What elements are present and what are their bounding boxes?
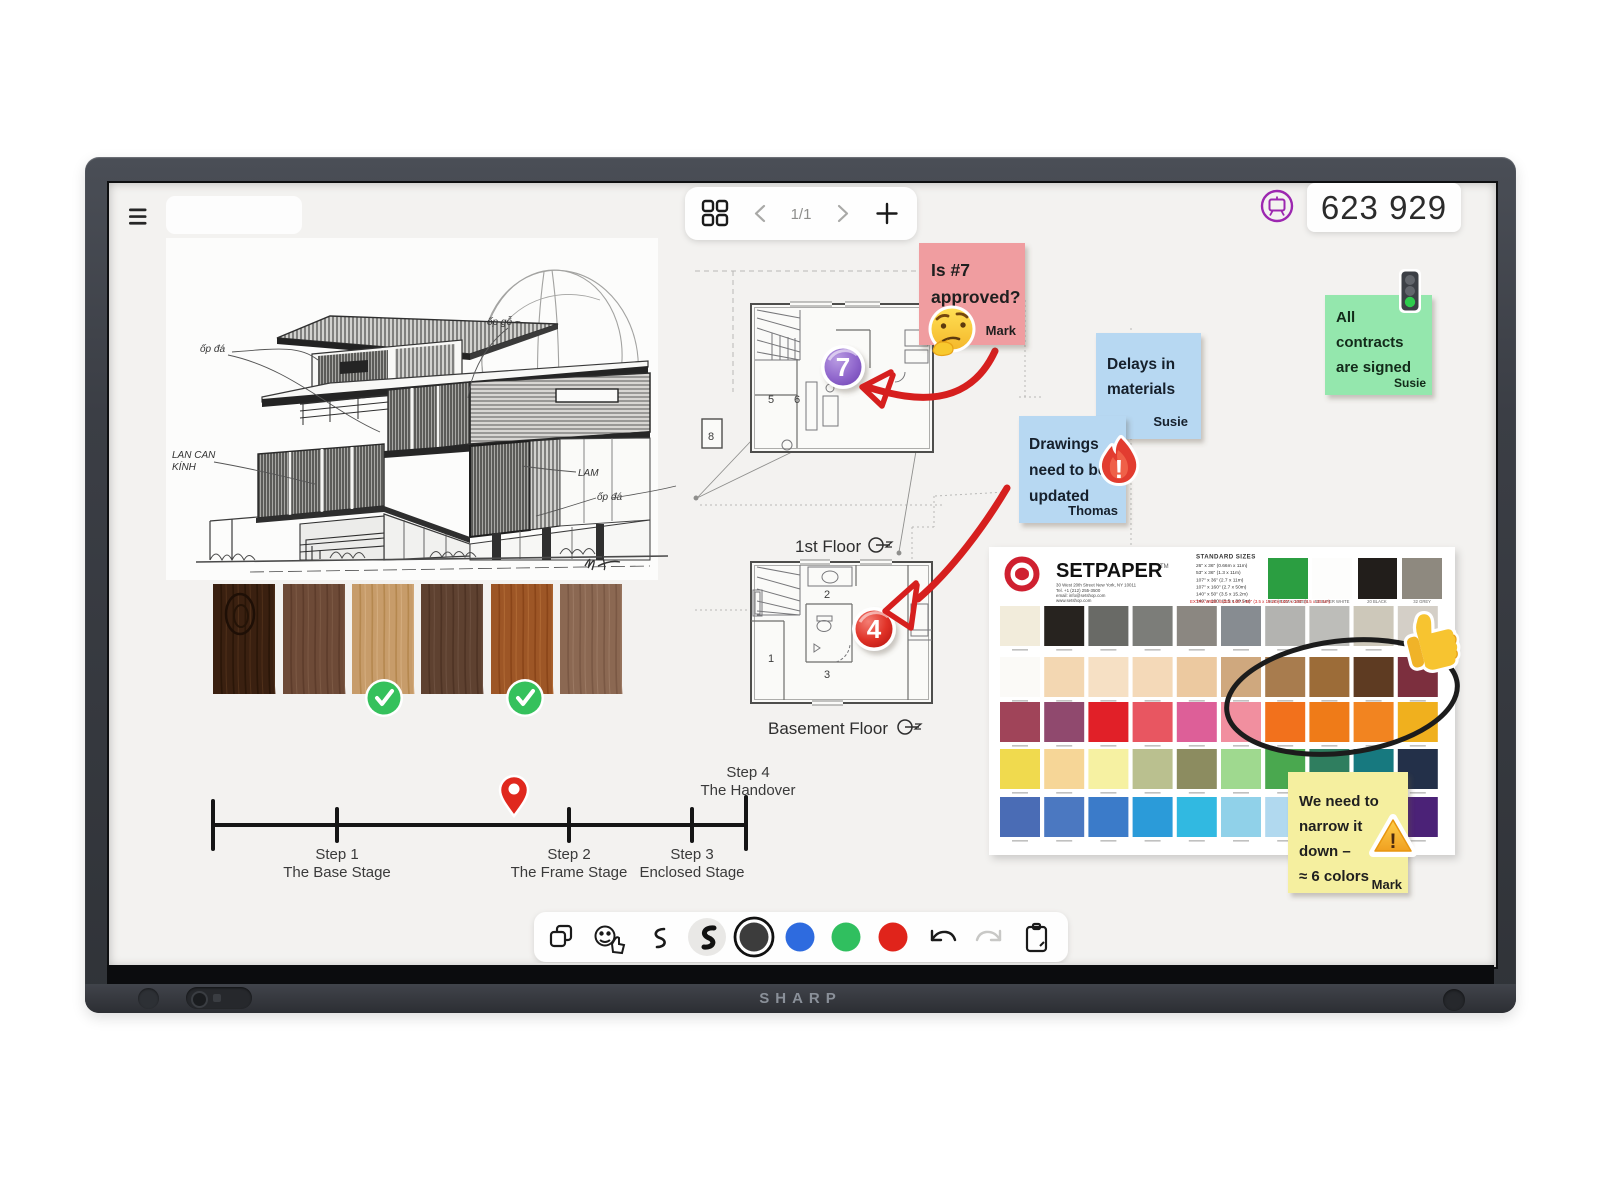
- svg-text:The Handover: The Handover: [700, 782, 795, 799]
- svg-text:26" x 36" (0.66m x 11m): 26" x 36" (0.66m x 11m): [1196, 563, 1248, 569]
- svg-text:5: 5: [768, 394, 774, 406]
- svg-text:Thomas: Thomas: [1068, 503, 1118, 518]
- svg-text:ốp gỗ ~: ốp gỗ ~: [487, 315, 521, 328]
- svg-text:Mark: Mark: [1372, 877, 1403, 892]
- svg-text:narrow it: narrow it: [1299, 818, 1362, 835]
- svg-text:2: 2: [824, 589, 830, 601]
- svg-text:Susie: Susie: [1153, 414, 1188, 429]
- svg-text:4: 4: [867, 614, 882, 644]
- svg-text:www.setshop.com: www.setshop.com: [1056, 598, 1092, 603]
- svg-text:107" x 160" (2.7 x 50m): 107" x 160" (2.7 x 50m): [1196, 584, 1247, 590]
- svg-text:Step 2: Step 2: [547, 846, 590, 863]
- svg-text:The Frame Stage: The Frame Stage: [511, 864, 628, 881]
- svg-text:ốp đá: ốp đá: [200, 343, 225, 355]
- svg-text:Step 4: Step 4: [726, 764, 769, 781]
- svg-text:down –: down –: [1299, 843, 1351, 860]
- svg-text:8: 8: [708, 431, 714, 443]
- svg-text:LAM: LAM: [578, 468, 599, 479]
- svg-text:Step 1: Step 1: [315, 846, 358, 863]
- svg-text:contracts: contracts: [1336, 334, 1404, 351]
- svg-text:1st Floor: 1st Floor: [795, 537, 861, 556]
- svg-text:53" x 36" (1.3 x 11m): 53" x 36" (1.3 x 11m): [1196, 570, 1241, 576]
- svg-text:Mark: Mark: [986, 323, 1017, 338]
- svg-text:107" x 36" (2.7 x 11m): 107" x 36" (2.7 x 11m): [1196, 577, 1244, 583]
- svg-text:We need to: We need to: [1299, 793, 1379, 810]
- svg-text:!: !: [1115, 454, 1124, 484]
- svg-text:STANDARD SIZES: STANDARD SIZES: [1196, 553, 1256, 560]
- svg-text:6: 6: [794, 394, 800, 406]
- svg-text:Step 3: Step 3: [670, 846, 713, 863]
- svg-text:Is #7: Is #7: [931, 260, 970, 280]
- svg-text:20 BLACK: 20 BLACK: [1367, 599, 1387, 604]
- svg-text:Drawings: Drawings: [1029, 436, 1099, 453]
- svg-text:are signed: are signed: [1336, 359, 1411, 376]
- svg-text:140" x 50" (3.5 x 15.2m): 140" x 50" (3.5 x 15.2m): [1196, 591, 1248, 597]
- svg-text:1/1: 1/1: [791, 206, 812, 223]
- svg-text:approved?: approved?: [931, 287, 1020, 307]
- svg-text:Delays in: Delays in: [1107, 356, 1175, 373]
- svg-text:623 929: 623 929: [1321, 189, 1447, 226]
- svg-text:Susie: Susie: [1394, 376, 1426, 390]
- svg-text:need to be: need to be: [1029, 462, 1107, 479]
- svg-text:TM: TM: [1160, 564, 1169, 570]
- svg-text:EXTRA WIDE SIZES 140" x 50": EXTRA WIDE SIZES 140" x 50" (3.5 x 15.2m…: [1190, 599, 1330, 604]
- svg-text:Enclosed Stage: Enclosed Stage: [639, 864, 744, 881]
- svg-text:!: !: [1390, 830, 1397, 853]
- svg-text:7: 7: [836, 352, 850, 382]
- svg-text:email: info@setshop.com: email: info@setshop.com: [1056, 593, 1106, 598]
- svg-text:1: 1: [768, 653, 774, 665]
- svg-text:materials: materials: [1107, 381, 1175, 398]
- svg-text:3: 3: [824, 669, 830, 681]
- svg-text:KÍNH: KÍNH: [172, 460, 197, 473]
- svg-text:32 GREY: 32 GREY: [1413, 599, 1431, 604]
- svg-text:The Base Stage: The Base Stage: [283, 864, 391, 881]
- svg-text:≈ 6 colors: ≈ 6 colors: [1299, 868, 1369, 885]
- svg-text:Basement Floor: Basement Floor: [768, 719, 888, 738]
- svg-text:LAN CAN: LAN CAN: [172, 450, 216, 461]
- svg-text:Tel. +1 (212) 255-3500: Tel. +1 (212) 255-3500: [1056, 588, 1101, 593]
- svg-text:SETPAPER: SETPAPER: [1056, 560, 1163, 582]
- svg-text:All: All: [1336, 309, 1355, 326]
- svg-text:30 West 20th Street New York,: 30 West 20th Street New York, NY 10011: [1056, 583, 1137, 588]
